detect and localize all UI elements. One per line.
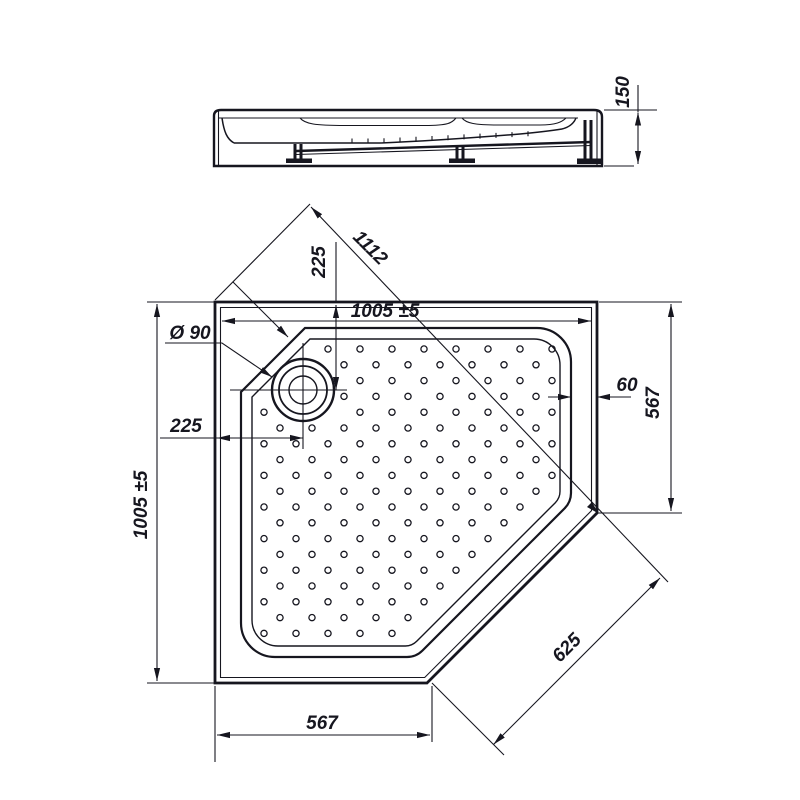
anti-slip-dot: [341, 488, 347, 494]
dim-chamfer-625: 625: [432, 578, 660, 755]
anti-slip-dot: [389, 599, 395, 605]
side-basin-left-wall: [222, 118, 234, 143]
anti-slip-dot: [549, 441, 555, 447]
anti-slip-dot: [501, 393, 507, 399]
anti-slip-dot: [325, 536, 331, 542]
anti-slip-dot: [389, 378, 395, 384]
anti-slip-dot: [325, 630, 331, 636]
anti-slip-dot: [453, 346, 459, 352]
anti-slip-dot: [309, 425, 315, 431]
dim-height-150: 150: [604, 76, 657, 166]
dim-height-left: 1005 ±5: [131, 302, 215, 683]
anti-slip-dot: [325, 346, 331, 352]
anti-slip-dot: [453, 472, 459, 478]
anti-slip-dot: [501, 362, 507, 368]
anti-slip-dot: [549, 472, 555, 478]
anti-slip-dot: [341, 425, 347, 431]
anti-slip-dot: [309, 488, 315, 494]
plan-view: [215, 302, 597, 683]
anti-slip-dot: [261, 409, 267, 415]
anti-slip-dot: [389, 630, 395, 636]
anti-slip-dot: [405, 425, 411, 431]
anti-slip-dot: [357, 472, 363, 478]
dim-rim-width-60: 60: [548, 375, 638, 397]
anti-slip-dot: [421, 441, 427, 447]
dim-side-right-567: 567: [598, 304, 682, 513]
anti-slip-dot: [357, 567, 363, 573]
dim-label-width-top: 1005 ±5: [351, 301, 420, 322]
dim-label-rim-width: 60: [616, 375, 638, 396]
dim-label-side-right: 567: [643, 386, 664, 419]
anti-slip-dot: [437, 551, 443, 557]
ext-line: [215, 204, 310, 300]
dim-label-offset-vertical: 225: [309, 246, 330, 279]
anti-slip-dot: [533, 393, 539, 399]
side-basin-scallop-right: [462, 118, 566, 125]
anti-slip-dot: [437, 583, 443, 589]
anti-slip-dot: [533, 457, 539, 463]
dim-label-drain-diameter: Ø 90: [169, 323, 211, 344]
anti-slip-dot: [437, 425, 443, 431]
anti-slip-dot: [357, 630, 363, 636]
anti-slip-dot: [453, 441, 459, 447]
anti-slip-dot: [421, 346, 427, 352]
anti-slip-dot: [437, 457, 443, 463]
anti-slip-dot: [437, 362, 443, 368]
anti-slip-dot: [389, 504, 395, 510]
anti-slip-dot: [261, 441, 267, 447]
anti-slip-dot: [501, 425, 507, 431]
anti-slip-dot: [405, 615, 411, 621]
anti-slip-dot: [421, 472, 427, 478]
anti-slip-dot: [373, 488, 379, 494]
anti-slip-dot: [405, 583, 411, 589]
anti-slip-dot: [453, 567, 459, 573]
anti-slip-dot: [261, 536, 267, 542]
anti-slip-dot: [373, 520, 379, 526]
anti-slip-dot: [421, 567, 427, 573]
anti-slip-dot: [421, 409, 427, 415]
side-view: [214, 110, 602, 166]
anti-slip-dot: [341, 393, 347, 399]
anti-slip-dot: [405, 551, 411, 557]
anti-slip-dot: [309, 551, 315, 557]
dim-drain-diameter: Ø 90: [165, 323, 272, 377]
anti-slip-dot: [261, 630, 267, 636]
anti-slip-dot: [437, 393, 443, 399]
side-floor-clips: [352, 131, 528, 143]
anti-slip-dot: [293, 504, 299, 510]
anti-slip-dot: [309, 615, 315, 621]
anti-slip-dot: [357, 504, 363, 510]
anti-slip-dot: [453, 536, 459, 542]
anti-slip-dot: [421, 536, 427, 542]
anti-slip-dot: [325, 567, 331, 573]
anti-slip-dot: [469, 393, 475, 399]
anti-slip-dot: [421, 504, 427, 510]
anti-slip-dot: [517, 441, 523, 447]
dim-line: [311, 207, 668, 582]
anti-slip-dot: [421, 378, 427, 384]
anti-slip-dot: [517, 378, 523, 384]
anti-slip-dot: [277, 488, 283, 494]
anti-slip-dot: [293, 472, 299, 478]
anti-slip-dot: [453, 378, 459, 384]
anti-slip-dot: [357, 378, 363, 384]
anti-slip-dot: [517, 409, 523, 415]
anti-slip-dot: [309, 583, 315, 589]
anti-slip-dot: [517, 472, 523, 478]
side-leg-middle: [449, 146, 475, 163]
anti-slip-dot: [325, 599, 331, 605]
anti-slip-dot: [341, 615, 347, 621]
anti-slip-dot: [277, 583, 283, 589]
anti-slip-dot: [389, 472, 395, 478]
anti-slip-dot: [277, 457, 283, 463]
dim-line: [494, 578, 661, 745]
anti-slip-dot: [501, 457, 507, 463]
anti-slip-dot: [309, 520, 315, 526]
anti-slip-dot: [389, 441, 395, 447]
anti-slip-dot: [261, 504, 267, 510]
anti-slip-dot: [485, 378, 491, 384]
anti-slip-dot: [325, 441, 331, 447]
anti-slip-dot: [357, 441, 363, 447]
dim-drain-offset-horizontal: 225: [160, 416, 303, 438]
anti-slip-dot: [373, 615, 379, 621]
anti-slip-dot: [405, 488, 411, 494]
anti-slip-dot: [293, 536, 299, 542]
anti-slip-dot: [357, 409, 363, 415]
anti-slip-dot: [309, 457, 315, 463]
dim-label-chamfer: 625: [548, 629, 586, 667]
drain: [230, 343, 347, 449]
drawing-canvas: 150 1005 ±5 1005 ±5 1: [0, 0, 800, 800]
anti-slip-dot: [373, 393, 379, 399]
anti-slip-dot: [469, 425, 475, 431]
anti-slip-dot: [341, 457, 347, 463]
anti-slip-dot: [293, 441, 299, 447]
anti-slip-dot: [277, 551, 283, 557]
anti-slip-dot: [389, 567, 395, 573]
anti-slip-dot: [293, 599, 299, 605]
anti-slip-dot: [469, 551, 475, 557]
dim-side-bottom-567: 567: [215, 686, 432, 762]
anti-slip-dot: [533, 488, 539, 494]
anti-slip-dot: [293, 630, 299, 636]
anti-slip-dot: [261, 567, 267, 573]
anti-slip-dot: [549, 409, 555, 415]
anti-slip-dot: [517, 504, 523, 510]
anti-slip-dot: [373, 583, 379, 589]
anti-slip-dot: [341, 362, 347, 368]
dim-label-offset-horizontal: 225: [169, 416, 202, 437]
anti-slip-dot: [533, 425, 539, 431]
anti-slip-dot: [485, 504, 491, 510]
anti-slip-dot: [517, 346, 523, 352]
anti-slip-dot: [549, 378, 555, 384]
anti-slip-dot: [389, 409, 395, 415]
anti-slip-dot: [325, 504, 331, 510]
anti-slip-dot: [389, 536, 395, 542]
anti-slip-dot: [341, 520, 347, 526]
anti-slip-dot: [261, 472, 267, 478]
side-basin-scallop-left: [300, 118, 456, 126]
anti-slip-dot: [485, 472, 491, 478]
anti-slip-dot: [277, 615, 283, 621]
side-leg-left: [286, 144, 312, 163]
anti-slip-dot: [469, 457, 475, 463]
anti-slip-dot: [357, 346, 363, 352]
anti-slip-dot: [485, 346, 491, 352]
anti-slip-dot: [277, 425, 283, 431]
anti-slip-dot: [501, 520, 507, 526]
side-basin-floor: [234, 129, 562, 143]
anti-slip-dot: [389, 346, 395, 352]
anti-slip-dot: [453, 504, 459, 510]
anti-slip-dot: [357, 599, 363, 605]
technical-drawing: 150 1005 ±5 1005 ±5 1: [0, 0, 800, 800]
anti-slip-dot: [325, 472, 331, 478]
anti-slip-dot: [469, 520, 475, 526]
dim-label-150: 150: [613, 76, 634, 108]
anti-slip-dot: [405, 362, 411, 368]
anti-slip-dot: [501, 488, 507, 494]
anti-slip-dot: [485, 409, 491, 415]
anti-slip-dot: [405, 457, 411, 463]
anti-slip-dot: [341, 551, 347, 557]
anti-slip-dot: [485, 441, 491, 447]
anti-slip-dot: [421, 599, 427, 605]
dim-label-height-left: 1005 ±5: [131, 470, 152, 539]
anti-slip-dot: [469, 488, 475, 494]
inner-corner-arrow: [233, 282, 288, 337]
anti-slip-dot: [277, 520, 283, 526]
anti-slip-dot: [261, 599, 267, 605]
anti-slip-dot: [437, 488, 443, 494]
dim-label-diagonal: 1112: [349, 227, 392, 270]
anti-slip-dot: [533, 362, 539, 368]
dim-width-top: 1005 ±5: [222, 301, 682, 322]
anti-slip-dot: [341, 583, 347, 589]
leader-line: [165, 343, 272, 377]
dim-label-side-bottom: 567: [306, 713, 339, 734]
anti-slip-dot: [373, 362, 379, 368]
anti-slip-dot: [469, 362, 475, 368]
anti-slip-dot: [293, 567, 299, 573]
anti-slip-dot: [373, 425, 379, 431]
anti-slip-dot: [405, 393, 411, 399]
anti-slip-dot: [437, 520, 443, 526]
anti-slip-dot: [453, 409, 459, 415]
anti-slip-dot: [405, 520, 411, 526]
anti-slip-dot: [357, 536, 363, 542]
anti-slip-dot: [373, 551, 379, 557]
anti-slip-dot: [373, 457, 379, 463]
anti-slip-dot: [485, 536, 491, 542]
